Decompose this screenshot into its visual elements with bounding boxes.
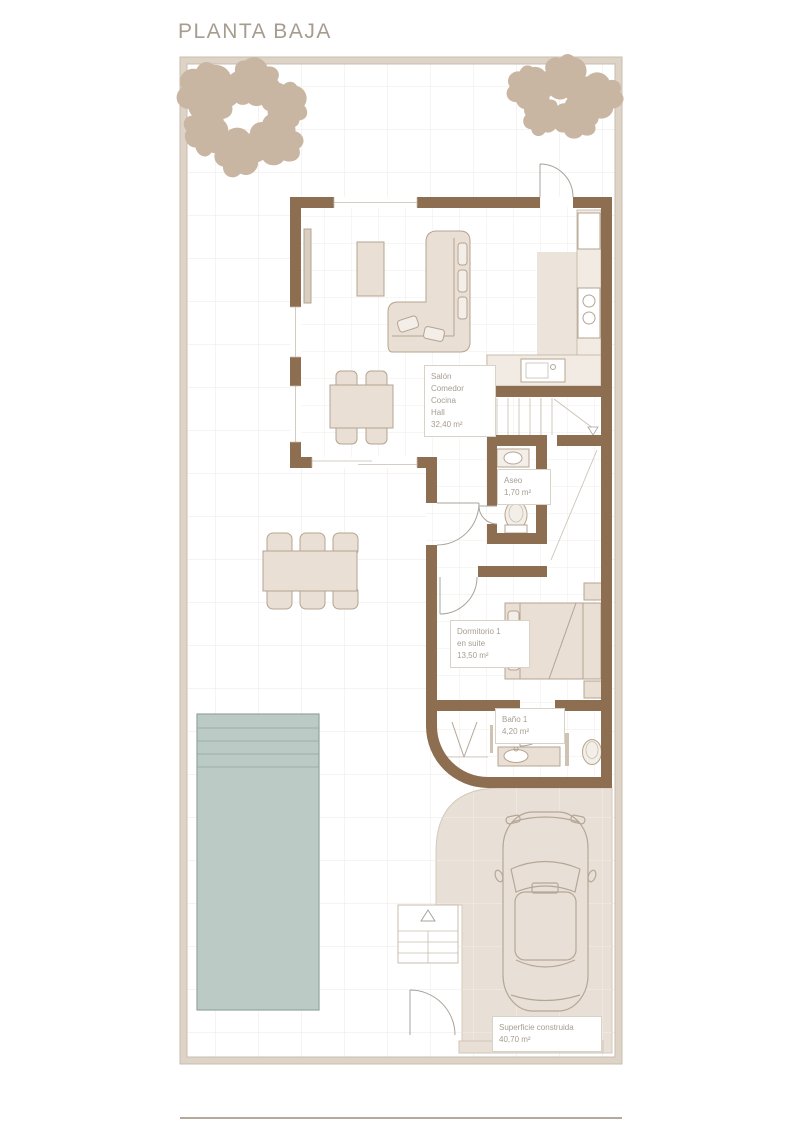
exterior-steps (398, 905, 458, 963)
dining-table (330, 385, 393, 428)
outdoor-table (263, 551, 357, 591)
sideboard (357, 242, 384, 296)
room-label-aseo: Aseo 1,70 m² (497, 469, 551, 505)
toilet-icon (583, 740, 602, 765)
sliding-door (312, 457, 417, 468)
dining-set-outdoor (263, 533, 358, 609)
footer-divider (180, 1117, 622, 1119)
room-label-dormitorio: Dormitorio 1 en suite 13,50 m² (450, 620, 530, 668)
page-title: PLANTA BAJA (178, 20, 332, 44)
fridge-icon (578, 213, 600, 249)
pool (197, 714, 319, 1010)
floor-plan-canvas (0, 0, 800, 1132)
nightstand (584, 681, 602, 698)
tv-icon (304, 229, 311, 303)
car-icon (494, 812, 598, 1011)
kitchen-sink-icon (521, 359, 565, 382)
nightstand (584, 583, 602, 600)
room-label-salon: Salón Comedor Cocina Hall 32,40 m² (424, 365, 496, 437)
room-label-superficie: Superficie construida 40,70 m² (492, 1016, 602, 1052)
room-label-bano: Baño 1 4,20 m² (495, 708, 565, 744)
